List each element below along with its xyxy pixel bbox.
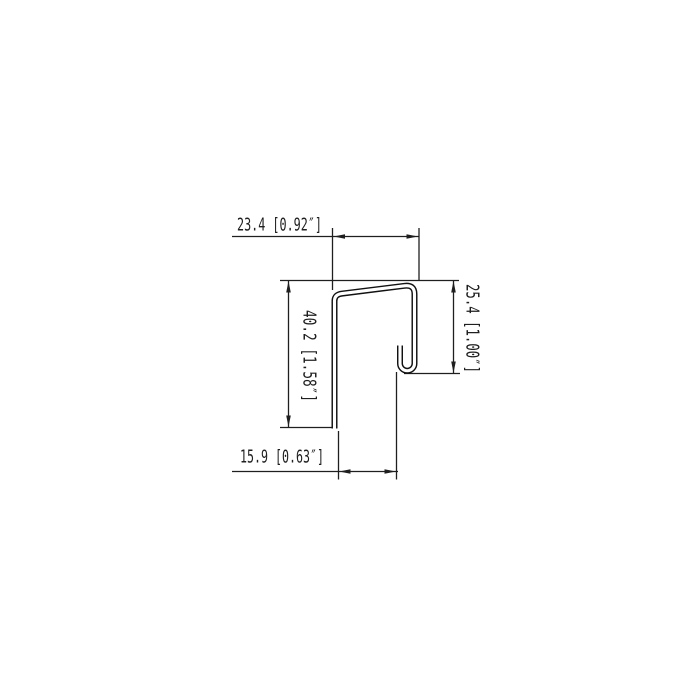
dimension-label-left-height: 40.2 [1.58″] [299, 310, 320, 402]
profile-material-outer-edge [335, 286, 415, 429]
dimension-left-height: 40.2 [1.58″] [280, 281, 333, 428]
drawing-canvas: 23.4 [0.92″] 40.2 [1.58″] 25.4 [1.00″] 1… [0, 0, 700, 700]
dimension-label-bottom-width: 15.9 [0.63″] [240, 447, 324, 468]
arrow-up-icon [451, 281, 456, 293]
arrow-right-icon [407, 234, 419, 239]
arrow-left-icon [339, 469, 351, 474]
arrow-up-icon [286, 281, 291, 293]
dimension-label-right-height: 25.4 [1.00″] [462, 284, 483, 373]
profile-outline [335, 286, 415, 429]
dimension-top-width: 23.4 [0.92″] [232, 215, 419, 291]
profile-technical-drawing: 23.4 [0.92″] 40.2 [1.58″] 25.4 [1.00″] 1… [0, 0, 700, 700]
arrow-left-icon [334, 234, 346, 239]
arrow-down-icon [286, 416, 291, 428]
dimension-label-top-width: 23.4 [0.92″] [237, 215, 322, 236]
arrow-right-icon [385, 469, 397, 474]
arrow-down-icon [451, 362, 456, 374]
